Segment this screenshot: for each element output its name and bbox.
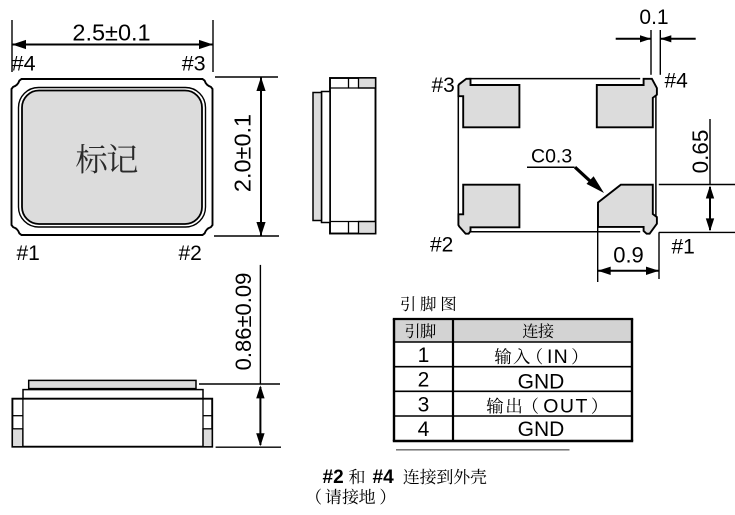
svg-text:IN: IN: [547, 346, 569, 368]
svg-text:#4: #4: [12, 52, 36, 76]
svg-text:0.1: 0.1: [639, 6, 668, 29]
svg-text:2.5±0.1: 2.5±0.1: [72, 20, 150, 46]
svg-text:#2: #2: [323, 467, 344, 488]
svg-text:#4: #4: [665, 70, 689, 93]
svg-text:GND: GND: [518, 418, 565, 441]
svg-text:GND: GND: [518, 371, 565, 394]
svg-text:#1: #1: [17, 242, 40, 265]
svg-text:#3: #3: [182, 52, 206, 76]
svg-text:#3: #3: [432, 74, 455, 97]
svg-text:#2: #2: [430, 234, 453, 257]
svg-text:0.65: 0.65: [688, 130, 713, 174]
svg-text:3: 3: [418, 394, 430, 417]
svg-text:#1: #1: [672, 236, 695, 259]
svg-text:C0.3: C0.3: [531, 146, 572, 168]
svg-text:#2: #2: [179, 242, 202, 265]
svg-text:0.86±0.09: 0.86±0.09: [231, 273, 256, 371]
svg-text:#4: #4: [373, 467, 395, 488]
svg-text:0.9: 0.9: [613, 243, 644, 268]
svg-text:2: 2: [418, 368, 430, 391]
svg-text:2.0±0.1: 2.0±0.1: [230, 114, 256, 192]
svg-text:1: 1: [418, 344, 430, 367]
svg-text:OUT: OUT: [543, 395, 589, 417]
svg-text:4: 4: [418, 418, 430, 441]
